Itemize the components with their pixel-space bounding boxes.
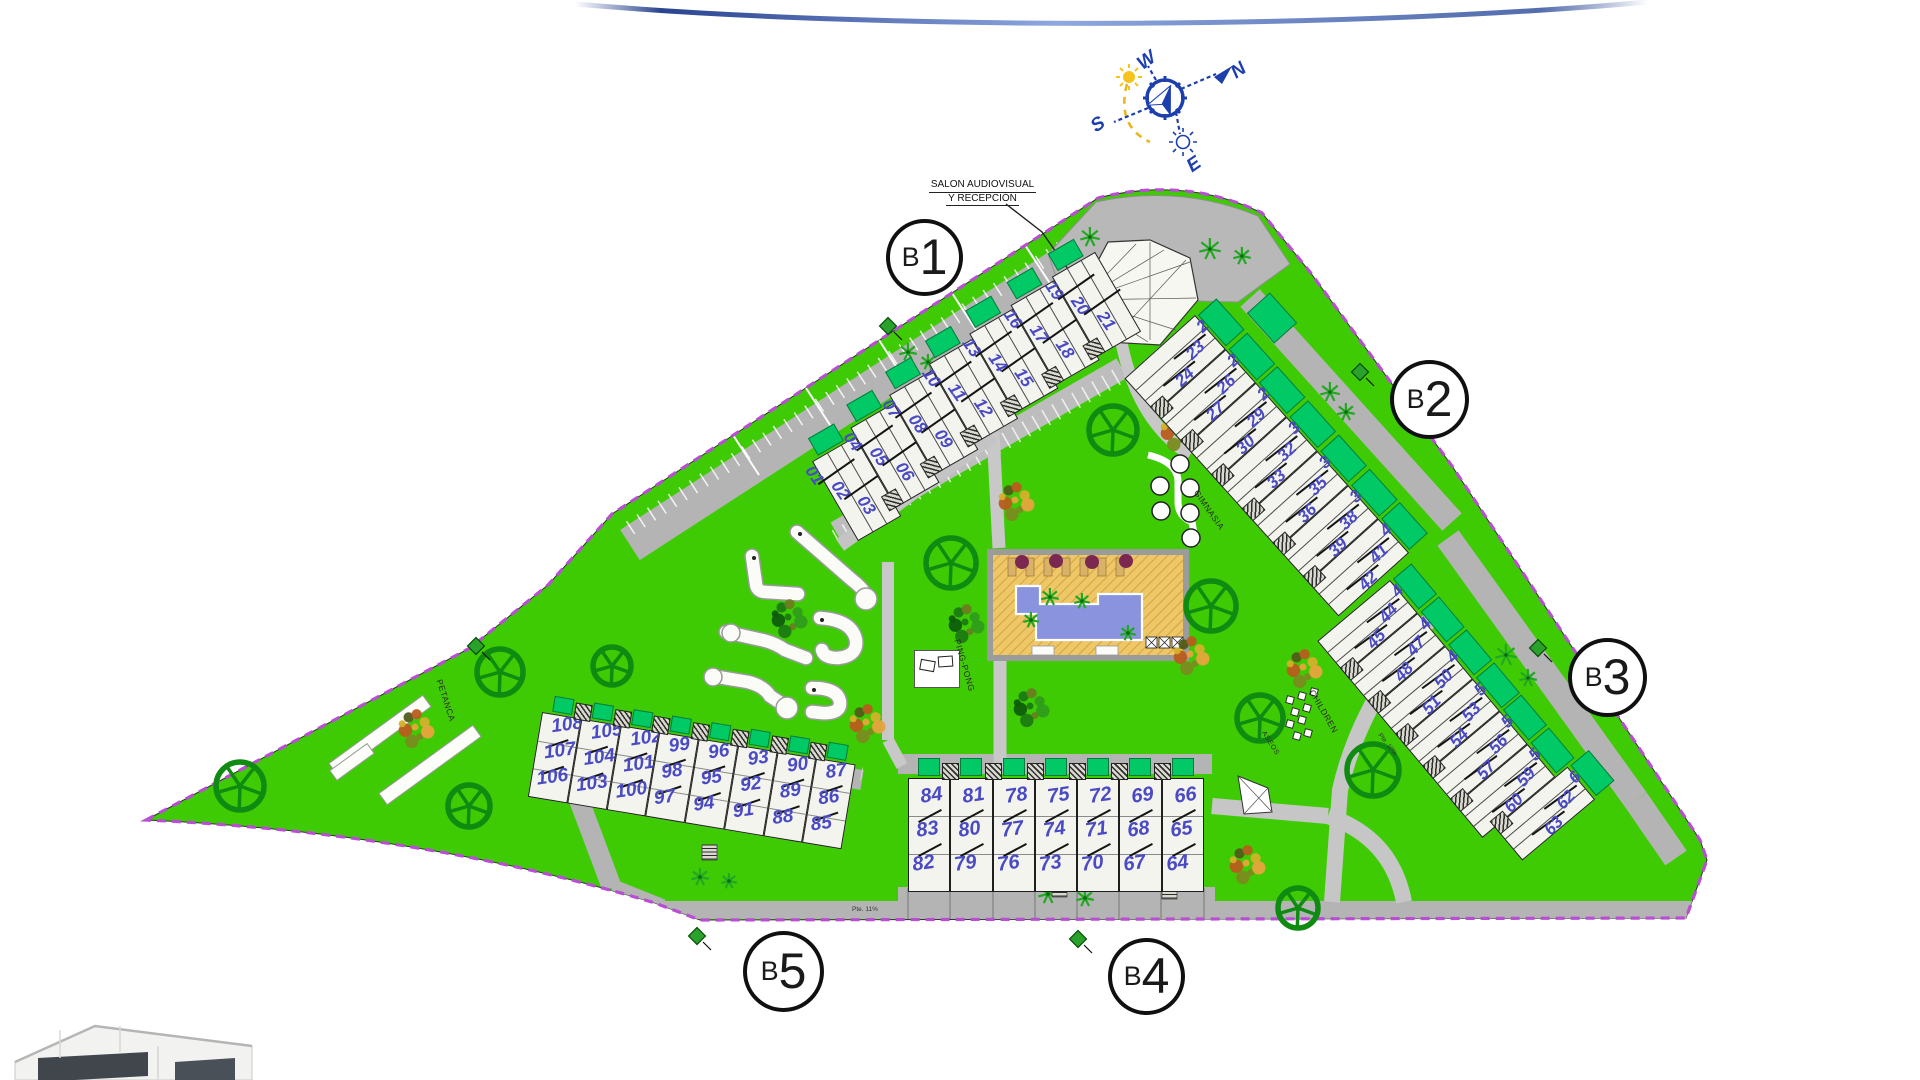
unit-80: 80	[957, 818, 982, 841]
unit-21: 21	[1094, 308, 1119, 333]
stair-hatch	[691, 722, 711, 742]
unit-77: 77	[1000, 818, 1025, 841]
unit-67: 67	[1122, 852, 1147, 875]
pool-area	[990, 552, 1186, 658]
unit-101: 101	[621, 753, 655, 776]
reception-callout: SALON AUDIOVISUAL Y RECEPCIÓN	[905, 179, 1060, 206]
unit-50: 50	[1431, 666, 1456, 691]
umbrella-icon	[1015, 555, 1029, 569]
block-label-b1: B1	[886, 219, 963, 296]
unit-65: 65	[1169, 818, 1194, 841]
table-icon	[919, 659, 936, 672]
terrace-garden	[787, 735, 809, 754]
unit-73: 73	[1038, 852, 1063, 875]
unit-96: 96	[707, 741, 730, 763]
unit-70: 70	[1080, 852, 1105, 875]
unit-18: 18	[1053, 336, 1078, 361]
unit-92: 92	[739, 774, 762, 796]
stair-hatch	[573, 702, 593, 722]
unit-66: 66	[1173, 784, 1198, 807]
block-label-number: 1	[920, 235, 948, 280]
unit-79: 79	[953, 852, 978, 875]
terrace-garden	[670, 716, 692, 735]
stair-hatch	[808, 742, 828, 762]
site-plan: W N S E SALON AUDIOVISUAL Y RECEPCIÓN PE…	[0, 0, 1920, 1080]
unit-95: 95	[700, 767, 723, 789]
unit-82: 82	[911, 852, 936, 875]
block-label-number: 4	[1142, 954, 1170, 999]
unit-block: 727170	[1077, 778, 1119, 892]
unit-69: 69	[1130, 784, 1155, 807]
unit-81: 81	[961, 784, 986, 807]
terrace-garden	[552, 696, 574, 715]
ping-pong-tables	[914, 650, 960, 688]
unit-94: 94	[692, 793, 715, 815]
unit-91: 91	[731, 800, 754, 822]
umbrella-icon	[1049, 554, 1063, 568]
unit-62: 62	[1553, 787, 1578, 812]
unit-block: 666564	[1162, 778, 1204, 892]
unit-block: 848382	[908, 778, 950, 892]
terrace-garden	[1087, 758, 1109, 776]
compass-graphic	[1080, 30, 1290, 195]
play-equipment-icon	[1303, 704, 1312, 713]
play-equipment-icon	[1298, 692, 1307, 701]
play-equipment-icon	[1286, 720, 1295, 729]
terrace-garden	[960, 758, 982, 776]
block-label-b2: B2	[1390, 360, 1469, 439]
block-label-letter: B	[1585, 662, 1603, 693]
terrace-garden	[1172, 758, 1194, 776]
top-logo-swoosh	[575, 2, 1648, 23]
unit-35: 35	[1305, 473, 1330, 498]
unit-100: 100	[614, 779, 648, 802]
unit-98: 98	[660, 760, 683, 782]
unit-26: 26	[1213, 371, 1238, 396]
block-label-letter: B	[1124, 961, 1142, 992]
unit-47: 47	[1403, 633, 1428, 658]
unit-block: 818079	[950, 778, 992, 892]
play-equipment-icon	[1286, 696, 1295, 705]
compass-dial	[1143, 76, 1187, 120]
unit-59: 59	[1513, 765, 1538, 790]
unit-99: 99	[668, 734, 691, 756]
block-label-number: 5	[779, 949, 807, 994]
stair-hatch	[1111, 763, 1128, 780]
unit-103: 103	[575, 772, 609, 795]
pool-tables	[1146, 637, 1183, 648]
unit-56: 56	[1486, 732, 1511, 757]
stair-hatch	[702, 845, 717, 860]
unit-44: 44	[1376, 600, 1401, 625]
terrace-garden	[709, 722, 731, 741]
unit-block: 787776	[993, 778, 1035, 892]
compass-rose: W N S E	[1080, 30, 1290, 195]
building-b4: 8483828180797877767574737271706968676665…	[908, 778, 1204, 892]
terrace-garden	[748, 729, 770, 748]
block-label-number: 3	[1603, 655, 1631, 700]
entrance-marker-icon	[689, 928, 711, 950]
unit-107: 107	[543, 739, 577, 762]
terrace-garden	[591, 702, 613, 721]
terrace-garden	[827, 742, 849, 761]
table-icon	[938, 655, 954, 667]
unit-32: 32	[1274, 439, 1299, 464]
unit-23: 23	[1183, 337, 1208, 362]
block-label-b3: B3	[1568, 638, 1647, 717]
unit-83: 83	[915, 818, 940, 841]
site-plan-drawing	[0, 0, 1920, 1080]
block-label-b5: B5	[743, 931, 824, 1012]
block-label-b4: B4	[1108, 938, 1185, 1015]
unit-06: 06	[892, 459, 917, 484]
stair-hatch	[612, 709, 632, 729]
stair-hatch	[769, 735, 789, 755]
stair-hatch	[1069, 763, 1086, 780]
play-equipment-icon	[1298, 716, 1307, 725]
umbrella-icon	[1119, 554, 1133, 568]
unit-97: 97	[653, 787, 676, 809]
stair-hatch	[942, 763, 959, 780]
unit-75: 75	[1046, 784, 1071, 807]
unit-93: 93	[746, 747, 769, 769]
terrace-garden	[918, 758, 940, 776]
play-equipment-icon	[1291, 708, 1300, 717]
block-label-letter: B	[761, 956, 779, 987]
stair-hatch	[1027, 763, 1044, 780]
unit-71: 71	[1084, 818, 1109, 841]
unit-68: 68	[1126, 818, 1151, 841]
terrace-garden	[631, 709, 653, 728]
unit-53: 53	[1458, 699, 1483, 724]
unit-09: 09	[931, 426, 956, 451]
unit-72: 72	[1088, 784, 1113, 807]
block-label-letter: B	[1407, 384, 1425, 415]
unit-85: 85	[810, 813, 833, 835]
unit-84: 84	[919, 784, 944, 807]
unit-76: 76	[996, 852, 1021, 875]
unit-88: 88	[771, 806, 794, 828]
terrace-garden	[1045, 758, 1067, 776]
unit-78: 78	[1004, 784, 1029, 807]
block-label-letter: B	[902, 242, 920, 273]
unit-41: 41	[1366, 541, 1391, 566]
unit-90: 90	[785, 754, 808, 776]
slope-label: Pte. 11%	[852, 906, 878, 913]
unit-64: 64	[1165, 852, 1190, 875]
unit-74: 74	[1042, 818, 1067, 841]
callout-line1: SALON AUDIOVISUAL	[929, 179, 1036, 193]
unit-87: 87	[825, 761, 848, 783]
block-label-number: 2	[1425, 377, 1453, 422]
stair-hatch	[730, 729, 750, 749]
building-render-fragment	[15, 1026, 252, 1080]
entrance-marker-icon	[1070, 931, 1092, 953]
play-equipment-icon	[1304, 729, 1313, 738]
sun-icon	[1116, 64, 1142, 90]
unit-86: 86	[817, 787, 840, 809]
stair-hatch	[651, 716, 671, 736]
unit-15: 15	[1011, 365, 1036, 390]
unit-block: 696867	[1119, 778, 1161, 892]
umbrella-icon	[1085, 555, 1099, 569]
terrace-garden	[1129, 758, 1151, 776]
unit-03: 03	[854, 493, 879, 518]
play-equipment-icon	[1293, 732, 1302, 741]
callout-line2: Y RECEPCIÓN	[946, 193, 1019, 207]
terrace-garden	[1003, 758, 1025, 776]
unit-38: 38	[1335, 507, 1360, 532]
unit-106: 106	[535, 766, 569, 789]
unit-104: 104	[582, 746, 616, 769]
unit-89: 89	[778, 780, 801, 802]
unit-block: 757473	[1035, 778, 1077, 892]
stair-hatch	[985, 763, 1002, 780]
unit-29: 29	[1244, 405, 1269, 430]
stair-hatch	[1154, 763, 1171, 780]
unit-12: 12	[971, 395, 996, 420]
